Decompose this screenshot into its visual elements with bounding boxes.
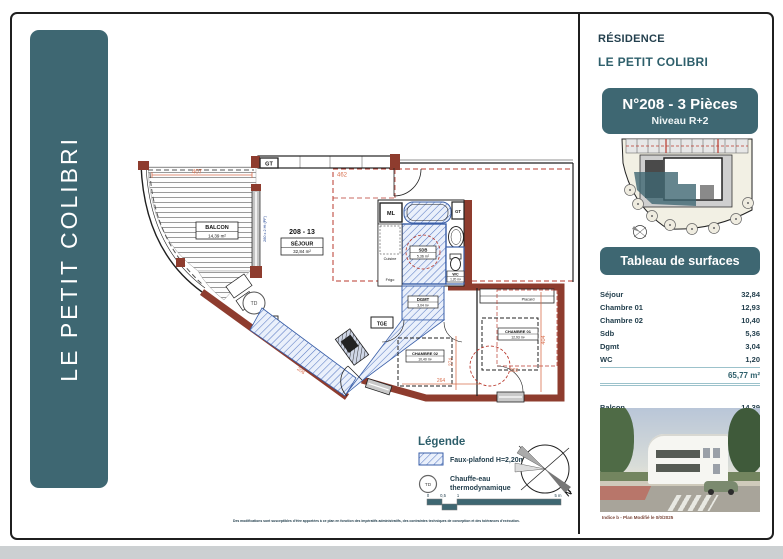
door-swing <box>394 168 421 196</box>
gt-label: GT <box>265 162 273 168</box>
dimension-274: 274 <box>449 358 455 367</box>
dimension-404: 404 <box>541 335 547 344</box>
floor-plan: BALCON 14,39 m² 407 GT 462 <box>110 135 580 430</box>
toilet <box>451 258 461 271</box>
chambre02-window <box>365 379 392 395</box>
page: LE PETIT COLIBRI <box>0 0 783 559</box>
unit-badge: N°208 - 3 Pièces Niveau R+2 <box>602 88 758 134</box>
dgmt-room: DGMT 3,04 m² <box>402 286 444 320</box>
balcony-area: 14,39 m² <box>208 234 226 239</box>
tree <box>728 408 760 474</box>
mini-compass <box>632 226 647 239</box>
row-value: 12,93 <box>741 303 760 312</box>
unit-number: N°208 - 3 Pièces <box>622 96 737 113</box>
car <box>704 481 738 492</box>
row-label: Chambre 02 <box>600 316 643 325</box>
row-value: 5,36 <box>745 329 760 338</box>
dgmt-label: DGMT <box>417 297 430 302</box>
sdb-area: 5,36 m² <box>417 255 430 259</box>
row-value: 3,04 <box>745 342 760 351</box>
bathroom-block: ML GT SDB 5,36 m² WC 1,20 m² Cuisine Fri… <box>378 200 464 286</box>
table-row: WC 1,20 <box>600 353 760 366</box>
photo-caption: Indice b - Plan Modifié le 0/0/2025 <box>602 515 673 520</box>
tge-label: TGE <box>377 322 388 328</box>
table-row: Dgmt 3,04 <box>600 340 760 353</box>
hatch-swatch <box>419 453 443 465</box>
cuisine-label: Cuisine <box>384 257 397 261</box>
chambre02-label: CHAMBRE 02 <box>412 351 439 356</box>
table-row: Sdb 5,36 <box>600 327 760 340</box>
row-label: Sdb <box>600 329 614 338</box>
sejour-area: 32,84 m² <box>293 249 311 254</box>
chambre01-area: 12,93 m² <box>511 336 525 340</box>
kitchen-counter <box>335 329 368 365</box>
table-row: Chambre 01 12,93 <box>600 301 760 314</box>
north-label: N <box>564 488 574 499</box>
row-value: 10,40 <box>741 316 760 325</box>
svg-text:0,5: 0,5 <box>440 493 446 498</box>
unit-ref: 208 - 13 <box>289 229 315 236</box>
site-plan-thumbnail <box>600 134 758 240</box>
disclaimer-text: Des modifications sont susceptibles d'êt… <box>233 519 578 523</box>
wc-area: 1,20 m² <box>450 278 461 282</box>
svg-text:0: 0 <box>427 493 430 498</box>
residence-name: LE PETIT COLIBRI <box>598 55 708 69</box>
td-symbol-label: TD <box>425 482 432 488</box>
svg-text:407: 407 <box>192 170 203 176</box>
sdb-label: SDB <box>419 248 428 253</box>
legend-item-chauffe-eau-2: thermodynamique <box>450 485 511 492</box>
banner-text: LE PETIT COLIBRI <box>56 136 83 382</box>
window-note: 260 x 2 Ht (PF) <box>263 215 267 241</box>
residence-label: RÉSIDENCE <box>598 33 665 45</box>
row-label: Dgmt <box>600 342 619 351</box>
legend-item-chauffe-eau-1: Chauffe-eau <box>450 476 490 483</box>
residence-banner: LE PETIT COLIBRI <box>30 30 108 488</box>
bottom-margin-strip <box>0 546 783 559</box>
chambre02-area: 10,40 m² <box>418 358 432 362</box>
building-rendering <box>600 408 760 512</box>
dimension-462: 462 <box>337 173 348 179</box>
building <box>648 434 728 484</box>
wc-label: WC <box>452 273 459 277</box>
table-row: Chambre 02 10,40 <box>600 314 760 327</box>
tree <box>600 408 634 476</box>
wall-segment <box>138 161 149 170</box>
dgmt-area: 3,04 m² <box>417 304 429 308</box>
balcony-label: BALCON <box>205 225 229 231</box>
legend-title: Légende <box>418 436 465 448</box>
row-label: WC <box>600 355 613 364</box>
sejour-room: 208 - 13 SÉJOUR 32,84 m² <box>281 229 323 255</box>
surface-total: 65,77 m² <box>600 369 760 382</box>
compass-rose: N <box>515 445 574 499</box>
table-row: Séjour 32,84 <box>600 288 760 301</box>
chambre01-label: CHAMBRE 01 <box>505 329 532 334</box>
legend-item-fauxplafond: Faux-plafond H=2,20m <box>450 457 525 464</box>
ml-label: ML <box>387 211 396 217</box>
unit-level: Niveau R+2 <box>652 115 709 127</box>
frigo-label: Frigo <box>386 278 395 282</box>
legend: Légende Faux-plafond H=2,20m TD Chauffe-… <box>413 428 580 514</box>
wall-segment <box>176 258 185 267</box>
td-label: TD <box>251 301 258 307</box>
dimension-264: 264 <box>437 378 446 384</box>
dimension-302: 302 <box>510 368 519 374</box>
wall-segment <box>464 200 472 287</box>
balcony-window: 260 x 2 Ht (PF) <box>250 184 267 278</box>
row-label: Séjour <box>600 290 623 299</box>
placard-label: Placard <box>522 298 535 302</box>
svg-text:5 m: 5 m <box>555 493 562 498</box>
surface-table-header: Tableau de surfaces <box>600 247 760 275</box>
row-value: 32,84 <box>741 290 760 299</box>
scale-bar: 0 0,5 1 5 m <box>427 493 562 510</box>
row-label: Chambre 01 <box>600 303 643 312</box>
door-swing <box>444 322 462 342</box>
svg-text:1: 1 <box>457 493 460 498</box>
pathway <box>600 486 651 500</box>
entry-hall-hatched <box>250 308 356 396</box>
gt-label: GT <box>455 209 461 214</box>
row-value: 1,20 <box>745 355 760 364</box>
sejour-label: SÉJOUR <box>291 240 314 248</box>
